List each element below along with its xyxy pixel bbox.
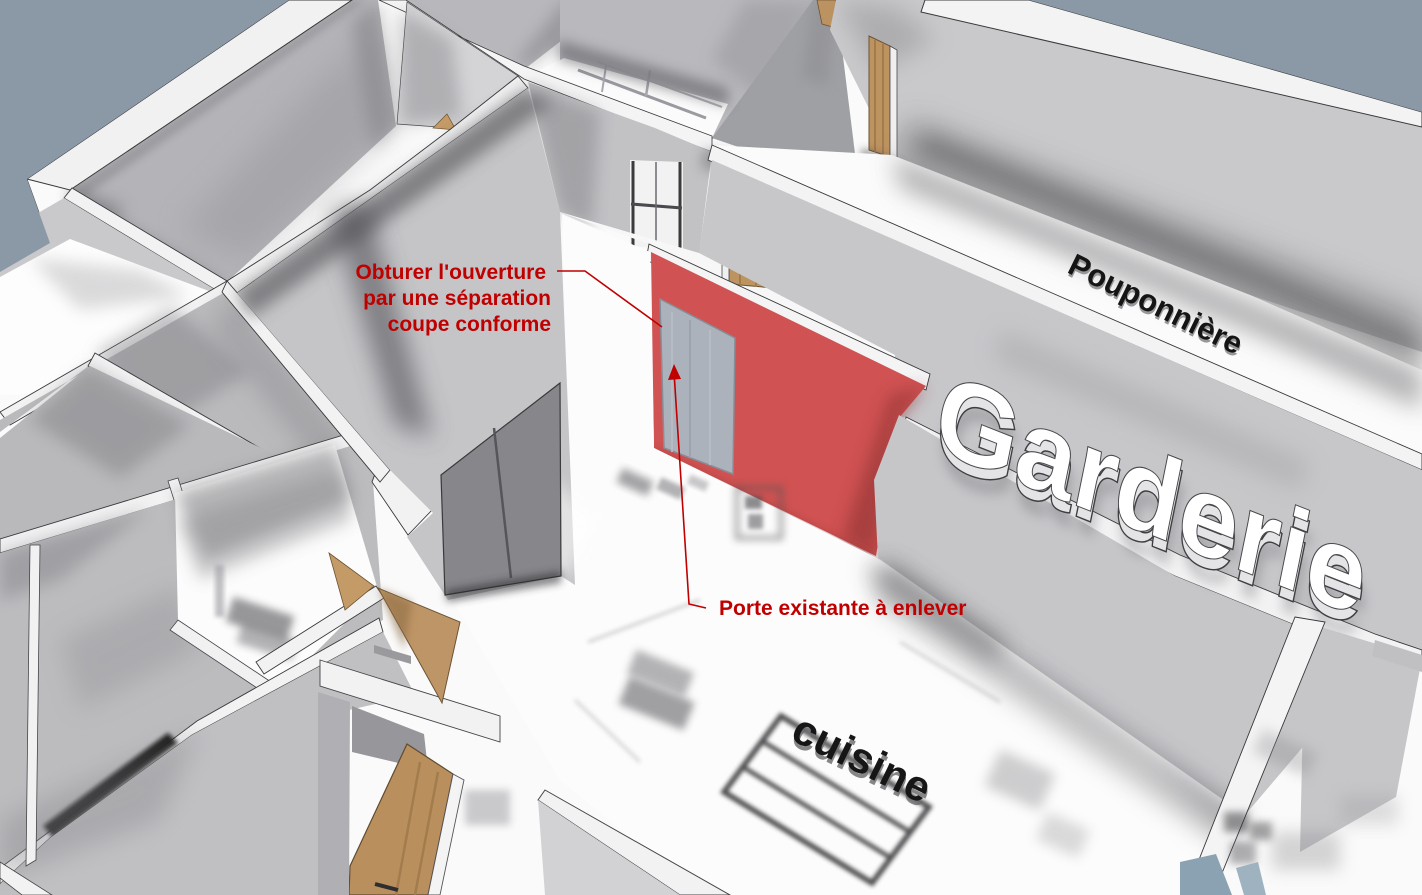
svg-text:coupe conforme: coupe conforme [388,313,551,336]
svg-text:Obturer l'ouverture: Obturer l'ouverture [355,261,546,284]
svg-text:Porte existante à enlever: Porte existante à enlever [719,597,966,620]
svg-text:par une séparation: par une séparation [363,287,551,310]
